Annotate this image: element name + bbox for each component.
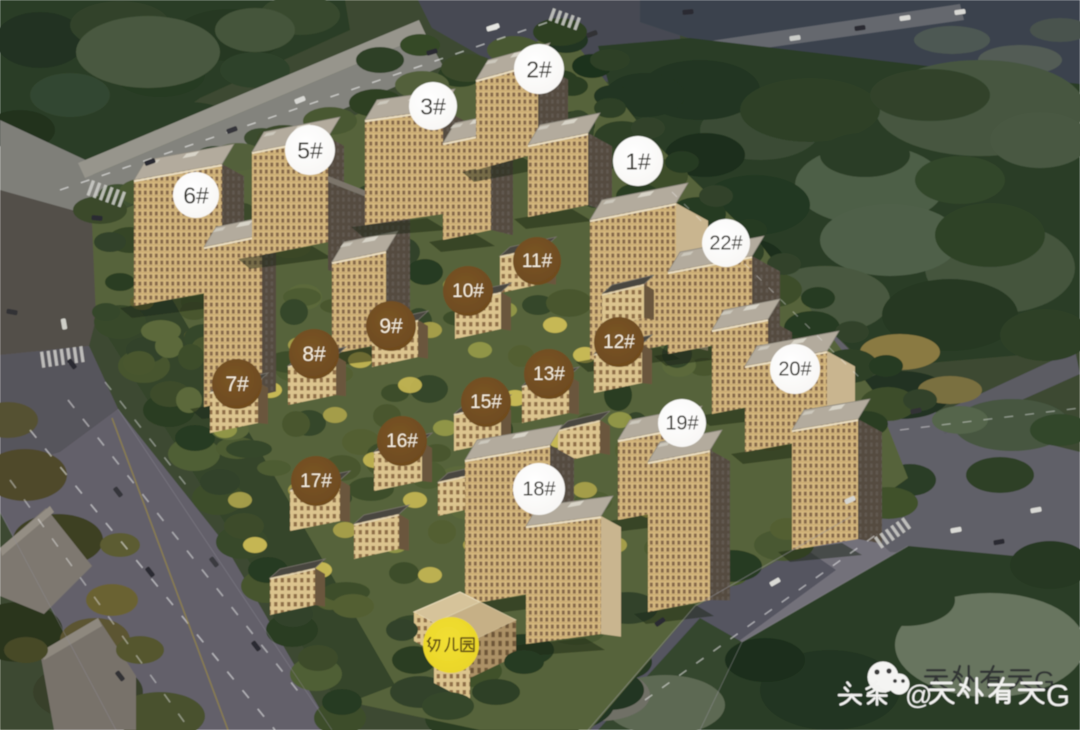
svg-text:13#: 13#: [533, 364, 565, 385]
svg-text:12#: 12#: [603, 332, 635, 353]
svg-text:2#: 2#: [526, 57, 552, 83]
svg-text:17#: 17#: [300, 471, 332, 492]
svg-text:6#: 6#: [183, 183, 209, 209]
svg-text:10#: 10#: [452, 281, 484, 302]
svg-text:3#: 3#: [420, 94, 446, 120]
svg-text:19#: 19#: [665, 413, 699, 435]
svg-text:15#: 15#: [470, 392, 502, 413]
svg-text:22#: 22#: [709, 233, 743, 255]
svg-text:20#: 20#: [778, 359, 812, 381]
svg-text:9#: 9#: [379, 315, 403, 338]
svg-text:5#: 5#: [297, 138, 323, 164]
svg-text:8#: 8#: [302, 343, 326, 366]
svg-text:18#: 18#: [522, 479, 556, 501]
svg-text:7#: 7#: [225, 373, 249, 396]
svg-text:@: @: [905, 680, 932, 710]
svg-text:11#: 11#: [522, 251, 553, 272]
svg-text:1#: 1#: [625, 149, 651, 175]
svg-text:16#: 16#: [386, 431, 418, 452]
svg-text:G: G: [1046, 678, 1070, 713]
